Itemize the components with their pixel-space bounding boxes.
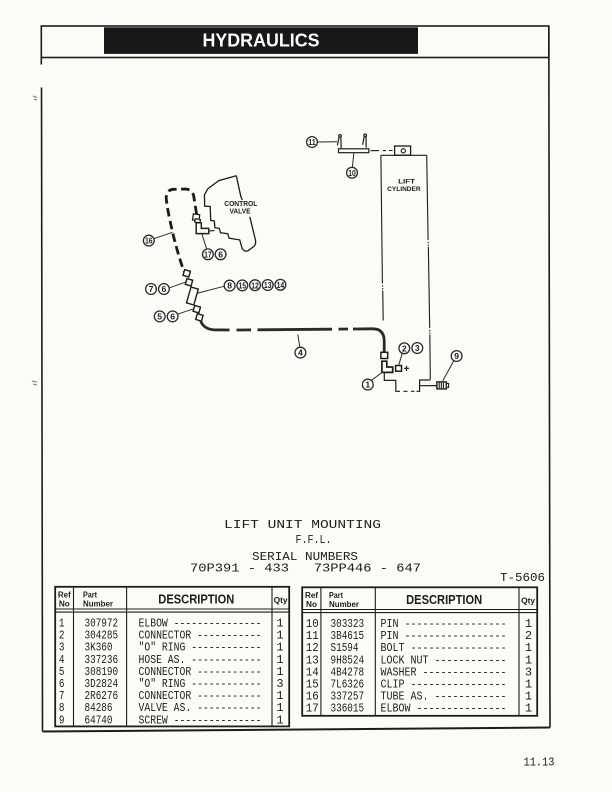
svg-text:HYDRAULICS: HYDRAULICS	[203, 31, 320, 51]
svg-text:13: 13	[264, 280, 272, 290]
svg-text:CONTROL: CONTROL	[224, 201, 258, 208]
svg-text:Number: Number	[83, 599, 113, 608]
svg-text:1: 1	[525, 702, 532, 716]
svg-text:1: 1	[365, 380, 370, 390]
svg-text:4: 4	[298, 348, 303, 358]
svg-text:DESCRIPTION: DESCRIPTION	[158, 591, 234, 606]
svg-text:ELBOW ---------------: ELBOW ---------------	[381, 702, 507, 716]
svg-text:Ref: Ref	[305, 591, 318, 600]
svg-text:1: 1	[276, 713, 283, 727]
svg-text:7: 7	[149, 284, 154, 294]
svg-text:6: 6	[170, 312, 175, 322]
svg-text:9: 9	[59, 713, 65, 727]
svg-text:Part: Part	[83, 590, 97, 599]
svg-text:6: 6	[218, 249, 223, 259]
svg-text:Part: Part	[329, 591, 343, 600]
svg-text:3: 3	[415, 343, 420, 353]
svg-text:14: 14	[277, 280, 285, 290]
svg-text:5: 5	[157, 312, 162, 322]
svg-text:Qty: Qty	[274, 595, 288, 605]
svg-text:16: 16	[145, 236, 153, 246]
svg-text:CYLINDER: CYLINDER	[387, 186, 421, 193]
svg-text:Qty: Qty	[521, 595, 535, 605]
svg-text:Number: Number	[329, 600, 359, 609]
svg-text:LIFT UNIT MOUNTING: LIFT UNIT MOUNTING	[224, 518, 381, 532]
svg-text:SCREW ---------------: SCREW ---------------	[139, 713, 262, 727]
svg-text:8: 8	[227, 281, 232, 291]
svg-text:2: 2	[402, 343, 407, 353]
svg-text:15: 15	[239, 281, 247, 291]
svg-text:No: No	[306, 600, 317, 609]
svg-text:F.F.L.: F.F.L.	[296, 533, 332, 547]
svg-text:6: 6	[162, 284, 167, 294]
svg-text:17: 17	[306, 702, 319, 716]
svg-text:17: 17	[204, 249, 212, 259]
svg-text:10: 10	[348, 168, 356, 178]
svg-text:64740: 64740	[85, 713, 113, 727]
svg-text:70P391 - 433 73PP446 - 647: 70P391 - 433 73PP446 - 647	[190, 562, 421, 576]
svg-text:9: 9	[454, 351, 459, 361]
svg-text:336015: 336015	[331, 702, 365, 716]
svg-text:11.13: 11.13	[524, 756, 555, 770]
svg-text:VALVE: VALVE	[230, 209, 251, 216]
svg-text:T-5606: T-5606	[500, 571, 545, 585]
svg-text:DESCRIPTION: DESCRIPTION	[406, 592, 482, 607]
svg-text:11: 11	[308, 137, 316, 147]
svg-text:No: No	[59, 599, 70, 608]
svg-text:Ref: Ref	[58, 590, 71, 599]
svg-text:LIFT: LIFT	[398, 178, 416, 185]
svg-text:12: 12	[251, 280, 259, 290]
